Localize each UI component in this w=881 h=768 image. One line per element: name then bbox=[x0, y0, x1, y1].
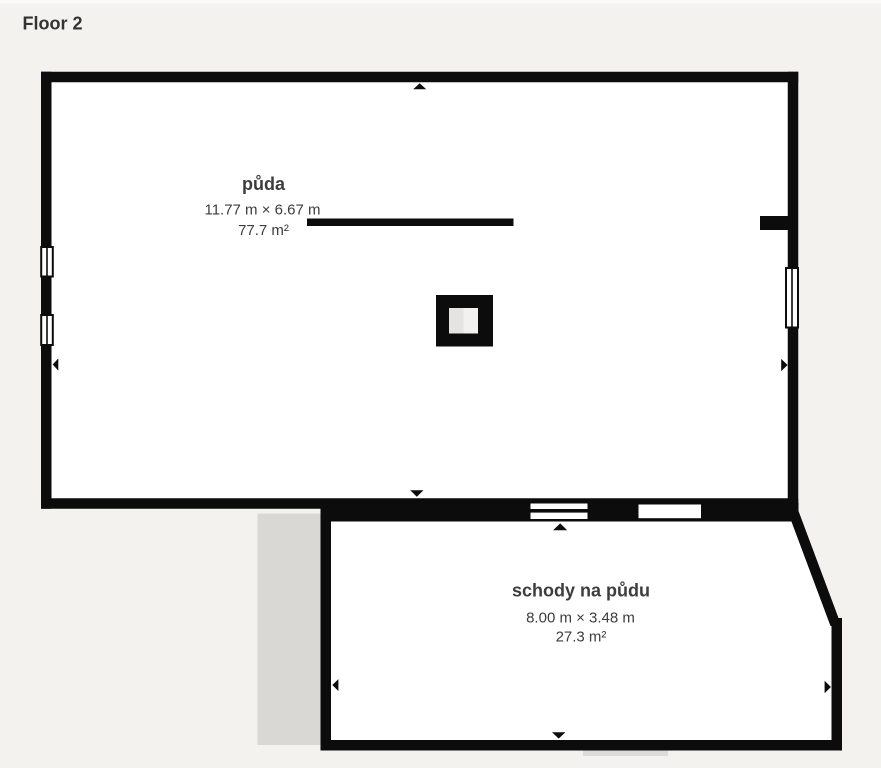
svg-text:půda: půda bbox=[242, 174, 286, 194]
svg-text:Floor 2: Floor 2 bbox=[23, 13, 83, 33]
svg-text:77.7 m²: 77.7 m² bbox=[238, 222, 289, 239]
svg-text:27.3 m²: 27.3 m² bbox=[556, 628, 607, 645]
svg-text:8.00 m × 3.48 m: 8.00 m × 3.48 m bbox=[526, 610, 635, 627]
svg-text:schody na půdu: schody na půdu bbox=[512, 581, 650, 601]
svg-text:11.77 m × 6.67 m: 11.77 m × 6.67 m bbox=[204, 202, 320, 219]
